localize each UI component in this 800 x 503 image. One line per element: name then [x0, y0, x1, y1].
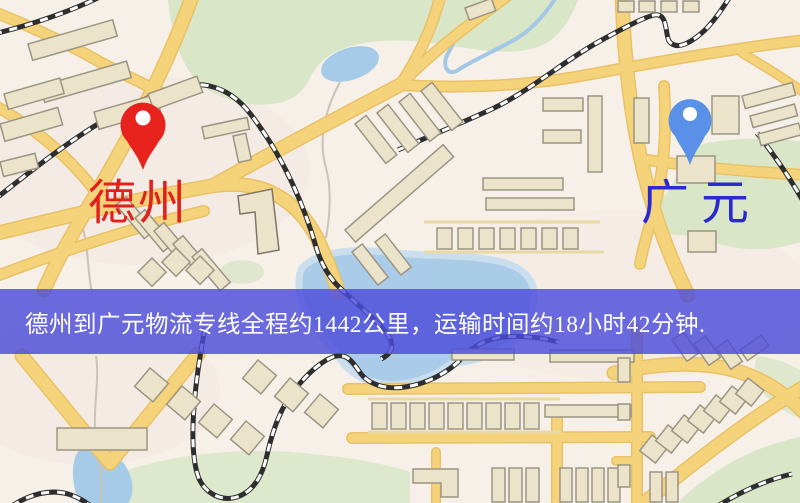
route-info-text: 德州到广元物流专线全程约1442公里，运输时间约18小时42分钟.	[25, 305, 705, 339]
map-view[interactable]: 德州 广元 德州到广元物流专线全程约1442公里，运输时间约18小时42分钟.	[0, 0, 800, 503]
destination-label: 广元	[641, 177, 761, 230]
origin-label: 德州	[88, 177, 188, 230]
route-info-banner: 德州到广元物流专线全程约1442公里，运输时间约18小时42分钟.	[0, 289, 800, 354]
map-canvas[interactable]: 德州 广元	[0, 0, 800, 503]
